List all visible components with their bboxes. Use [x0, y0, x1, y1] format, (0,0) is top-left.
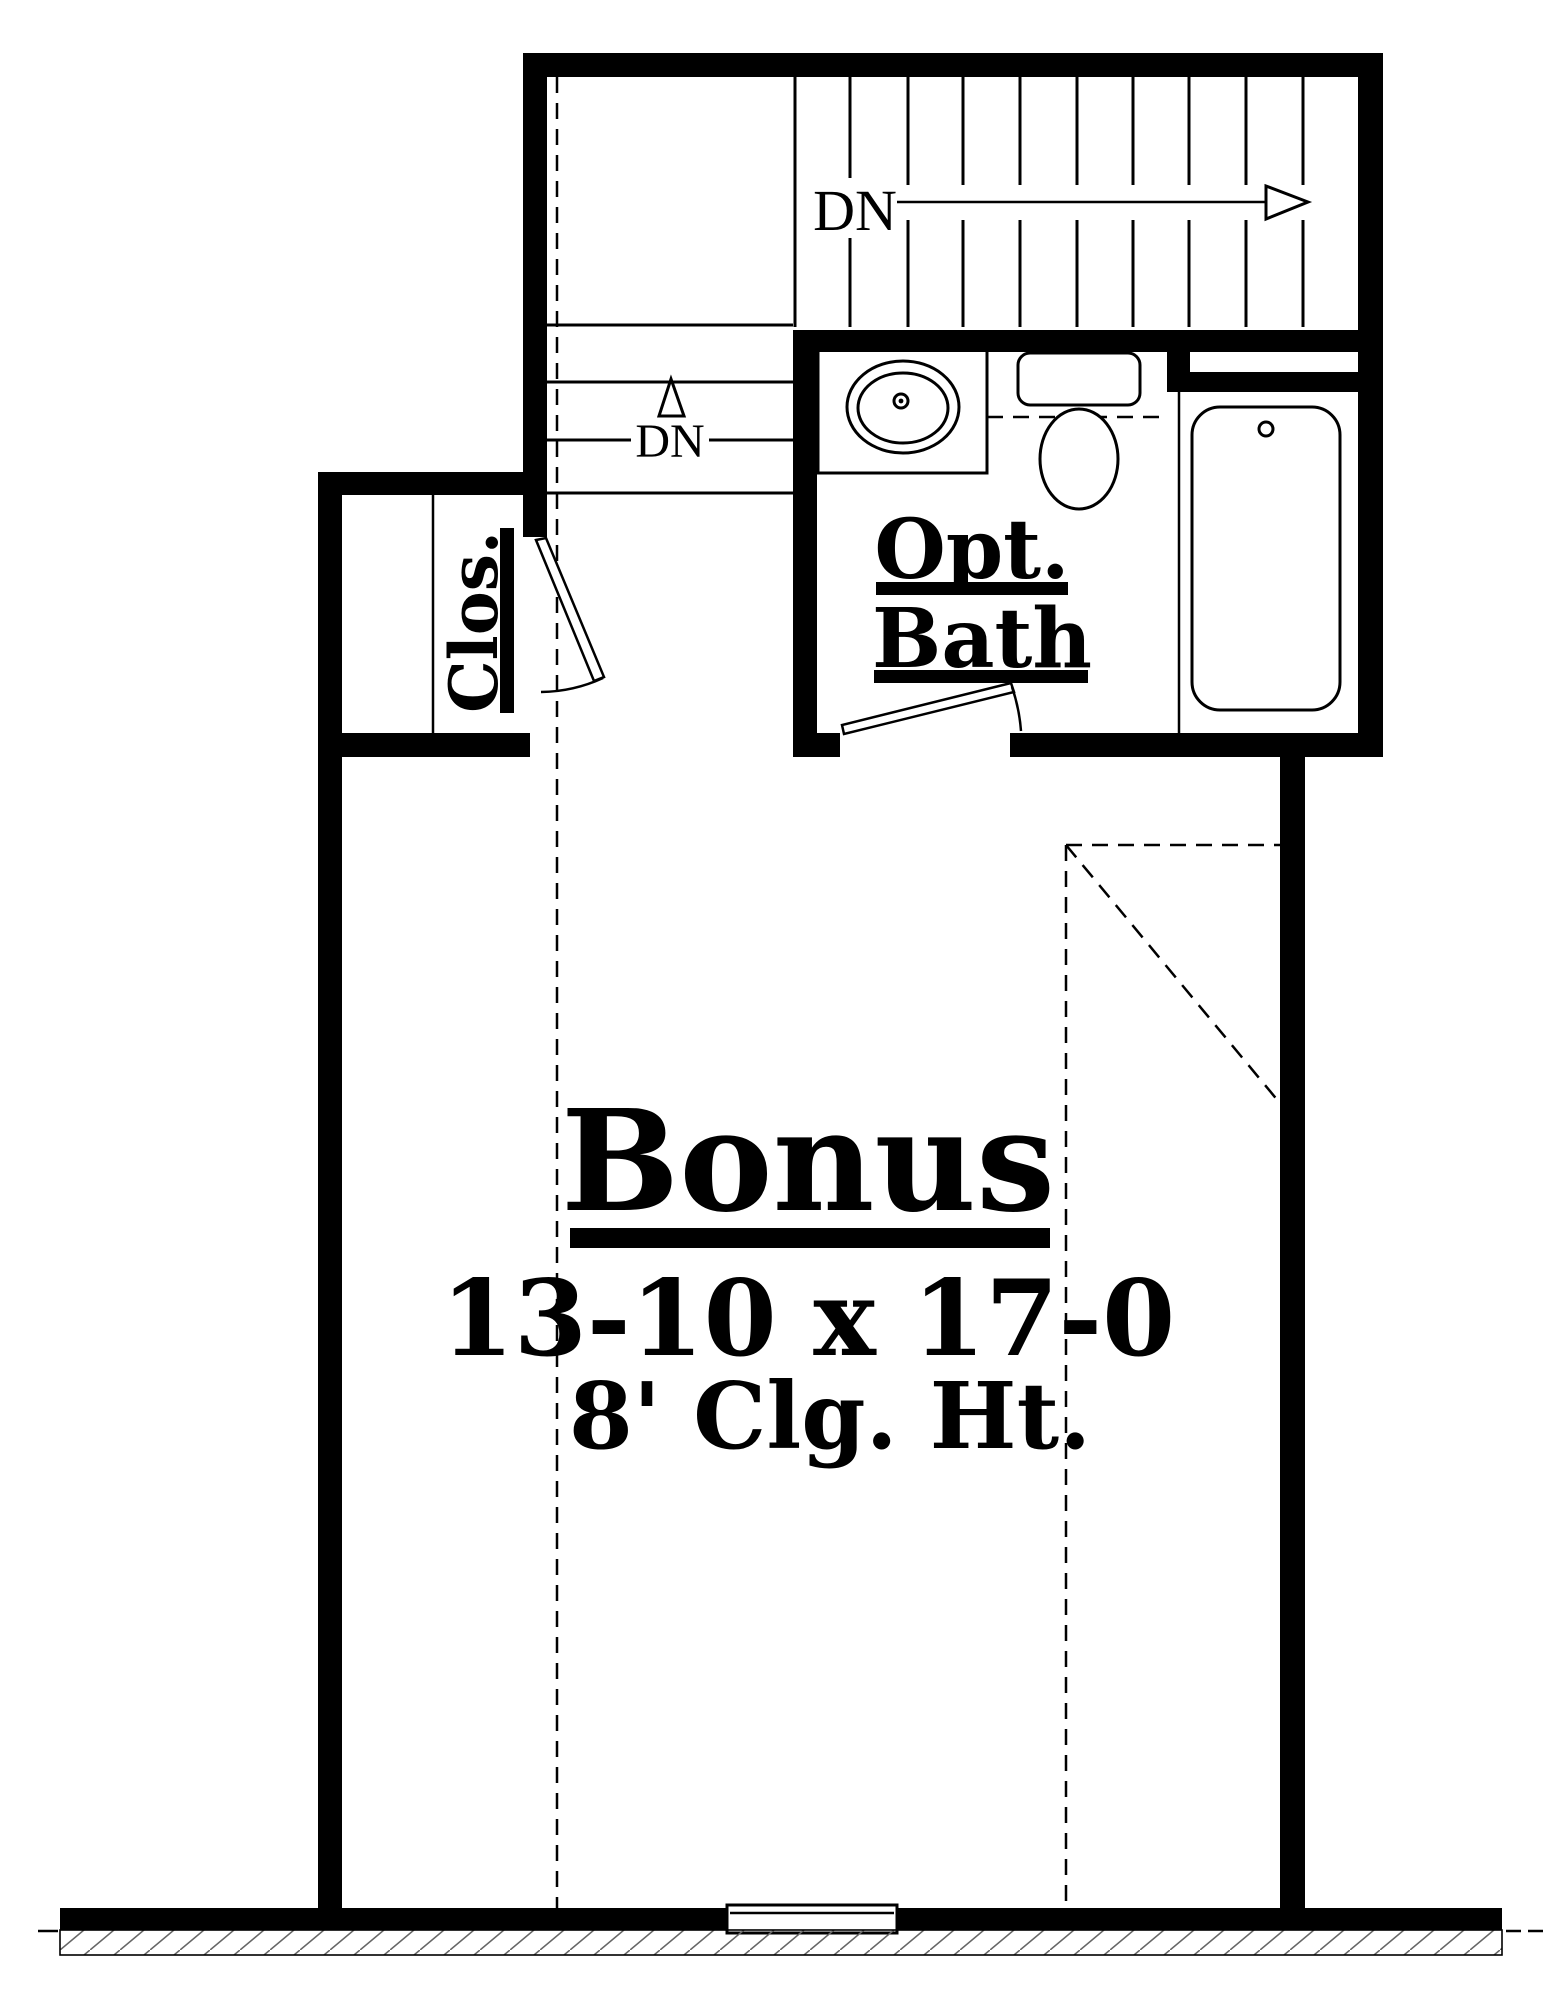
entry-sill [727, 1905, 897, 1933]
tub-faucet-icon [1259, 422, 1273, 436]
wall-bath-bottom-left [793, 733, 840, 757]
wall-right-lower [1280, 755, 1305, 1930]
wall-closet-top [318, 472, 543, 495]
ceiling-height-label: 8' Clg. Ht. [569, 1362, 1091, 1470]
stairs-dn-upper-label: DN [813, 178, 897, 243]
door-leaf [842, 683, 1014, 734]
bath-label-underline2 [874, 670, 1088, 683]
wall-left [318, 472, 342, 1908]
wall-stair-left [523, 53, 547, 537]
bathroom: Opt. Bath [818, 350, 1340, 733]
door-leaf [536, 538, 604, 681]
wall-bath-bottom-right [1010, 733, 1383, 757]
room-name-underline [570, 1228, 1050, 1248]
vanity [818, 350, 987, 473]
closet-label-underline [500, 528, 514, 713]
room-name-label: Bonus [561, 1080, 1055, 1244]
bathtub [1192, 407, 1340, 710]
bath-door [842, 683, 1021, 734]
foundation-hatch [38, 1930, 1544, 1955]
wall-top [523, 53, 1383, 77]
tub-niche [1190, 352, 1358, 372]
door-swing-arc [1012, 687, 1021, 731]
wall-under-stairs [793, 330, 1383, 352]
toilet [1018, 353, 1140, 509]
stairs-dn-lower-label: DN [635, 415, 704, 468]
wall-bath-left [793, 330, 817, 757]
floor-plan: DN DN [0, 0, 1548, 2000]
toilet-tank [1018, 353, 1140, 405]
closet: Clos. [433, 495, 514, 733]
floor-plan-drawing: DN DN [0, 0, 1548, 2000]
up-arrow-icon [659, 379, 684, 416]
staircase-upper-flight: DN [795, 77, 1330, 327]
staircase-lower-flight: DN [547, 325, 793, 493]
walls [60, 53, 1502, 1930]
wall-right-upper [1358, 53, 1383, 755]
toilet-bowl [1040, 409, 1118, 509]
wall-closet-bottom [318, 733, 530, 757]
bonus-room-door [536, 538, 604, 692]
